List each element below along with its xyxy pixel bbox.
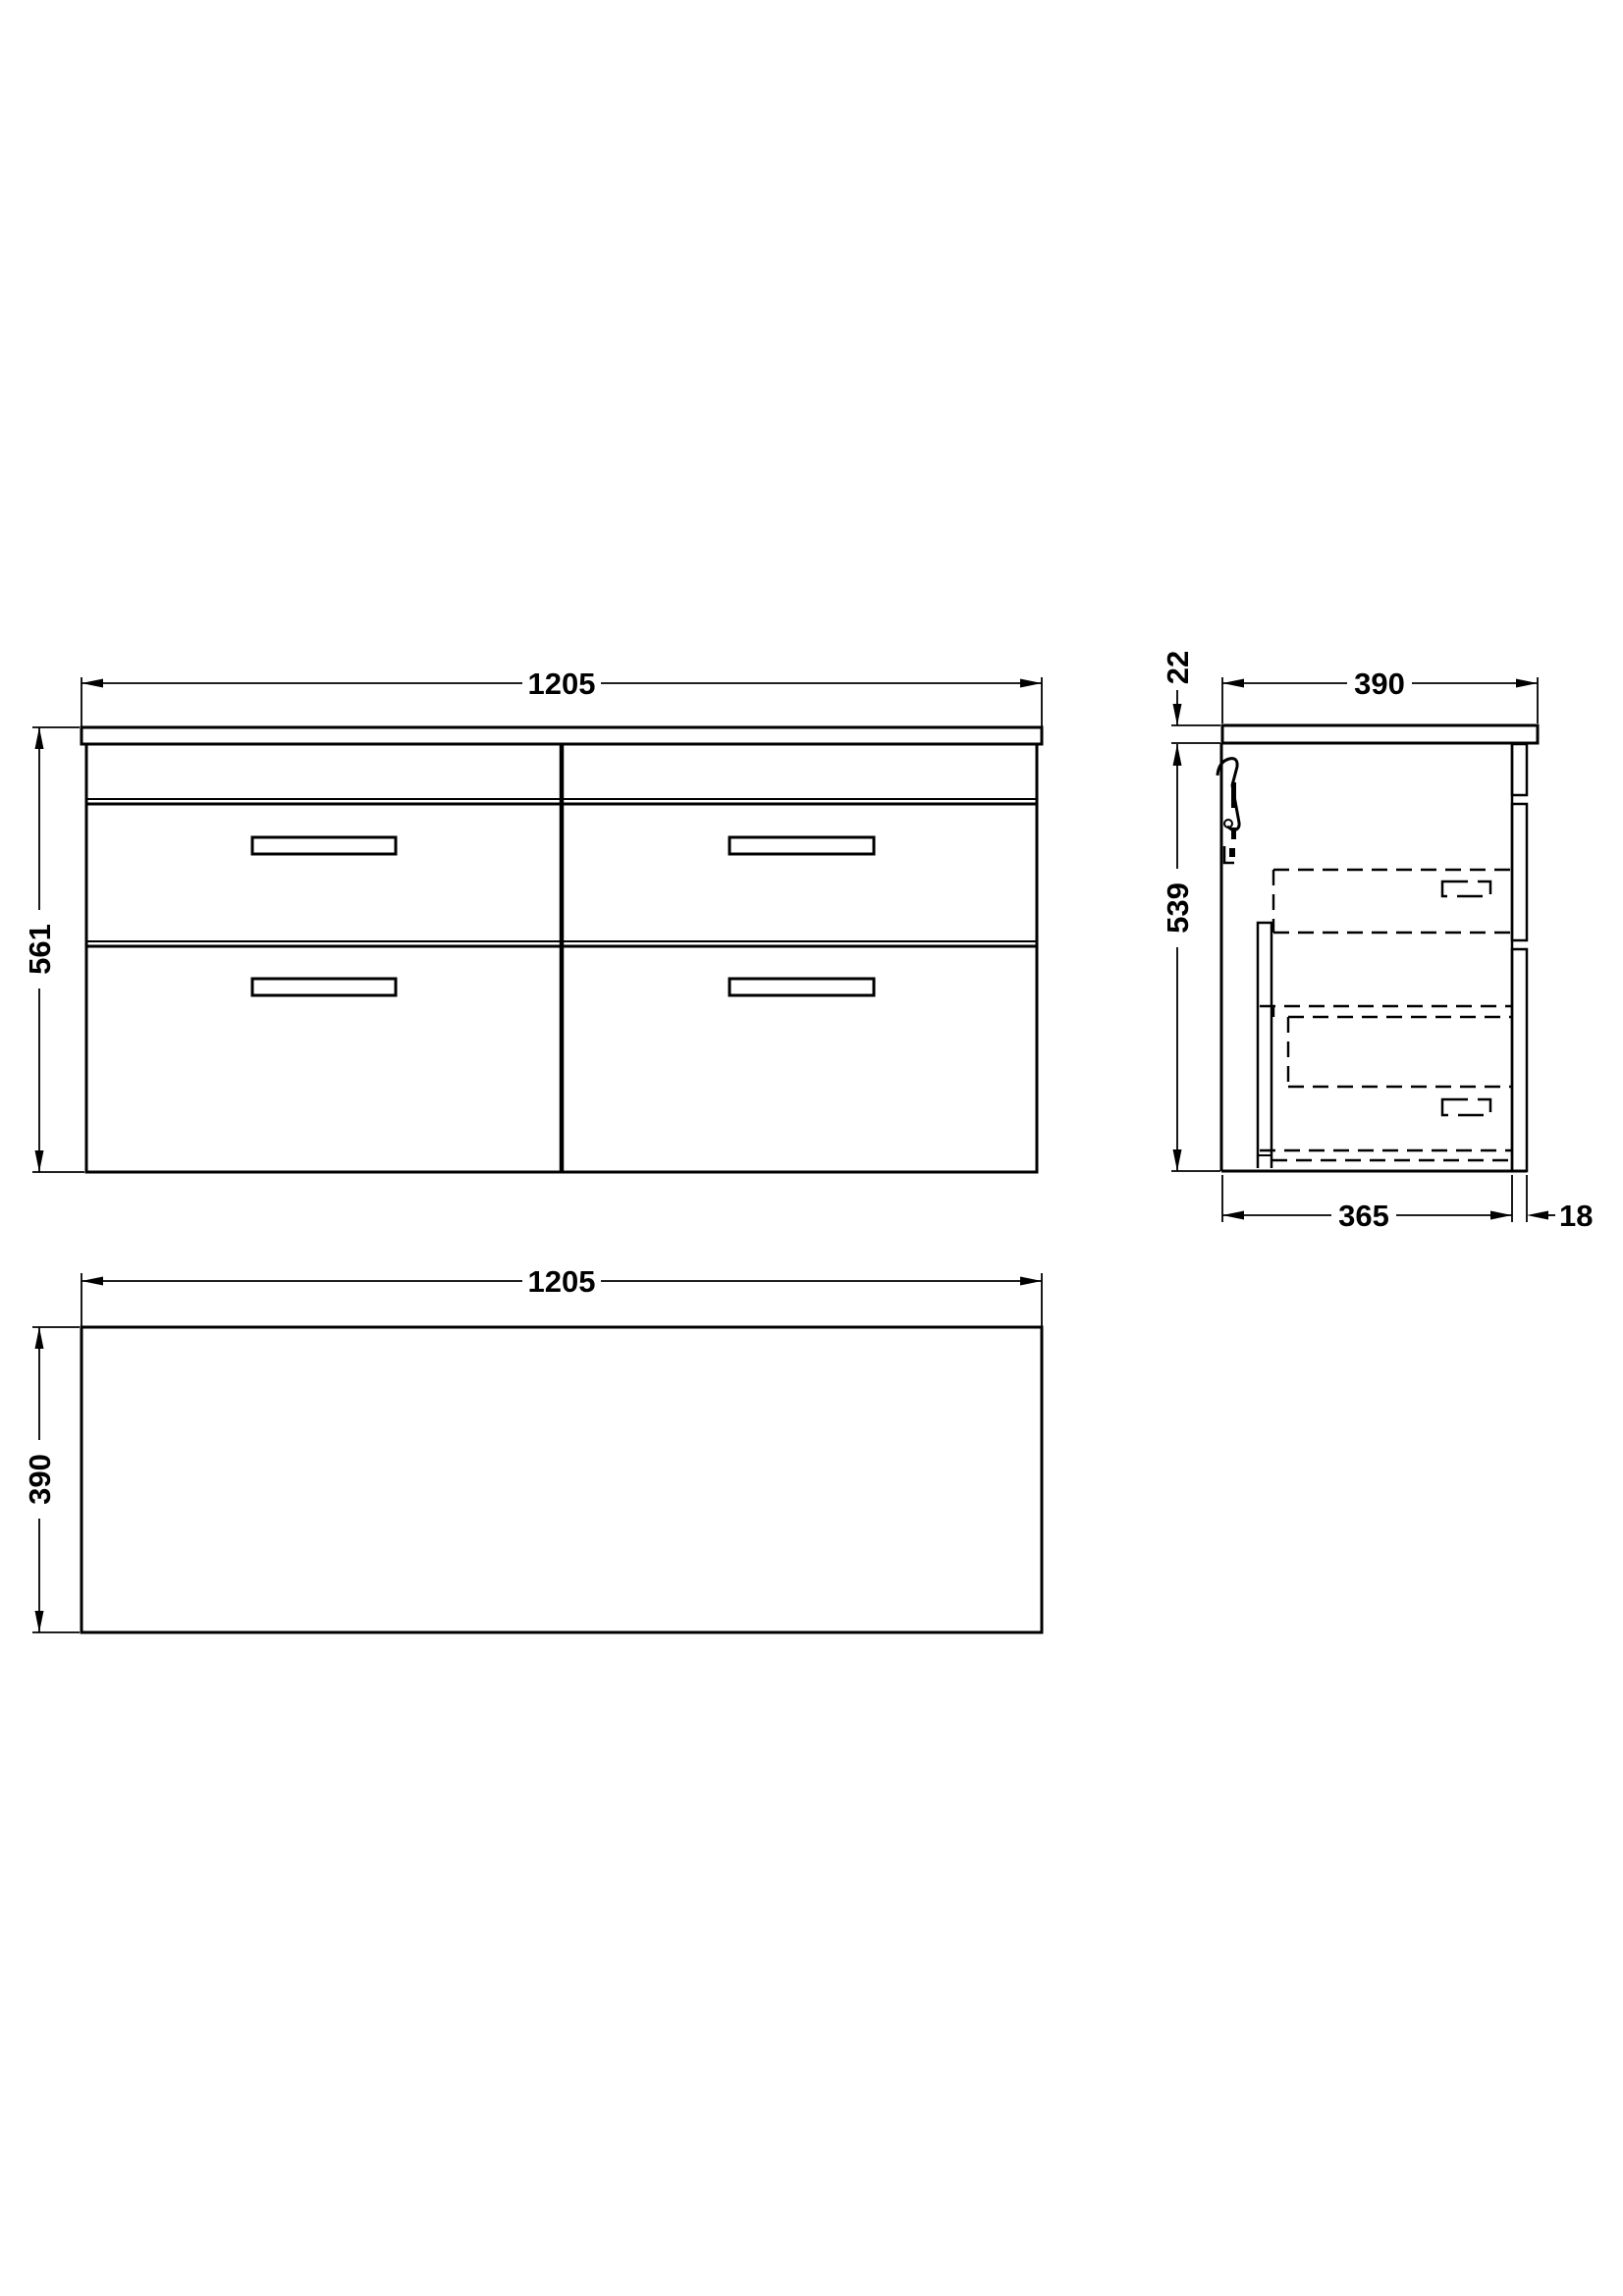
side-worktop — [1222, 725, 1538, 743]
technical-drawing-page: 1205 561 — [0, 0, 1623, 2296]
arrowhead — [81, 679, 103, 688]
wall-bracket-rail-mid — [1231, 828, 1236, 839]
hidden-drawer-boxes — [1258, 870, 1512, 1168]
lower-drawer-handle-hidden — [1442, 1099, 1490, 1115]
side-drawer-front-middle — [1512, 804, 1527, 940]
arrowhead — [1516, 679, 1538, 688]
side-view: 390 22 539 365 18 — [1161, 651, 1593, 1233]
arrowhead — [1020, 1277, 1042, 1286]
arrowhead — [35, 1611, 44, 1632]
vanity-unit-technical-drawing: 1205 561 — [0, 0, 1623, 2296]
arrowhead — [1222, 679, 1244, 688]
side-drawer-front-bottom — [1512, 949, 1527, 1171]
plan-depth-label-group: 390 — [23, 1440, 57, 1519]
plan-depth-label: 390 — [23, 1454, 57, 1505]
front-view: 1205 561 — [23, 667, 1042, 1172]
plan-worktop — [81, 1327, 1042, 1632]
arrowhead — [1020, 679, 1042, 688]
arrowhead — [1222, 1211, 1244, 1220]
side-worktop-label-group: 22 — [1161, 651, 1195, 684]
front-height-label: 561 — [23, 924, 57, 975]
front-height-label-group: 561 — [23, 910, 57, 988]
arrowhead — [1173, 704, 1182, 725]
arrowhead — [81, 1277, 103, 1286]
upper-drawer-handle-hidden — [1442, 881, 1490, 896]
side-depth-label: 390 — [1354, 667, 1405, 701]
arrowhead — [1173, 1149, 1182, 1171]
arrowhead — [35, 727, 44, 749]
drawer-handle-top-left — [252, 837, 396, 854]
arrowhead — [35, 1327, 44, 1349]
front-worktop — [81, 727, 1042, 744]
drawer-handle-bottom-right — [730, 979, 874, 995]
lower-drawer-inner-front — [1258, 923, 1271, 1168]
arrowhead — [1490, 1211, 1512, 1220]
side-carcass-depth-label: 365 — [1338, 1199, 1389, 1233]
drawer-handle-top-right — [730, 837, 874, 854]
plan-view: 1205 390 — [23, 1264, 1042, 1632]
arrowhead — [1527, 1211, 1548, 1220]
wall-bracket-rail-upper — [1231, 782, 1236, 808]
wall-bracket-rail-lower — [1229, 848, 1235, 857]
drawer-handle-bottom-left — [252, 979, 396, 995]
arrowhead — [35, 1150, 44, 1172]
side-drawer-front-top — [1512, 744, 1527, 795]
front-width-label: 1205 — [528, 667, 596, 701]
plan-width-label: 1205 — [528, 1264, 596, 1299]
arrowhead — [1173, 744, 1182, 766]
side-height-label-group: 539 — [1161, 869, 1195, 947]
side-height-label: 539 — [1161, 882, 1195, 934]
side-worktop-label: 22 — [1161, 651, 1195, 684]
side-front-thickness-label: 18 — [1559, 1199, 1593, 1233]
